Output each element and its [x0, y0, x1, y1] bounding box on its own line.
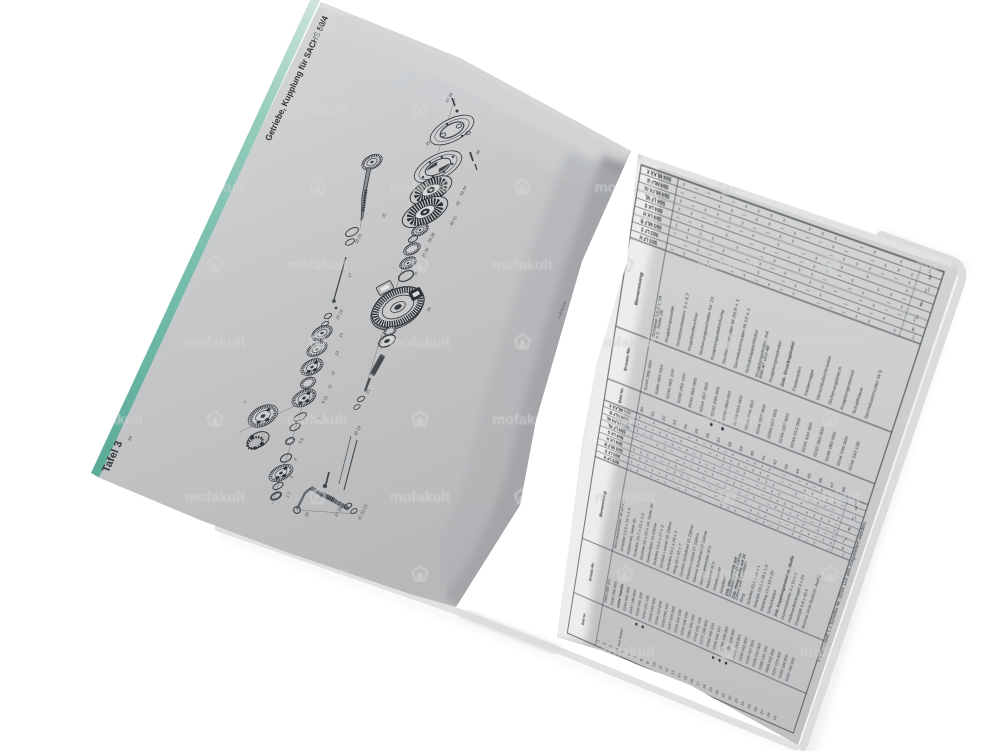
svg-text:x: x — [768, 221, 772, 227]
svg-text:x: x — [668, 461, 671, 466]
svg-text:x: x — [699, 231, 702, 237]
svg-text:—: — — [691, 202, 696, 209]
svg-text:—: — — [770, 265, 775, 272]
svg-text:x: x — [809, 279, 813, 285]
svg-text:44: 44 — [795, 468, 801, 475]
svg-text:—: — — [688, 218, 693, 225]
svg-text:x: x — [843, 497, 846, 502]
svg-text:x: x — [900, 258, 904, 264]
svg-text:x: x — [771, 489, 774, 494]
svg-text:x: x — [842, 256, 846, 262]
svg-text:x: x — [779, 233, 783, 239]
svg-text:—: — — [760, 253, 765, 260]
svg-text:—: — — [692, 450, 696, 456]
svg-text:—: — — [709, 243, 714, 250]
svg-text:x: x — [716, 453, 719, 458]
svg-text:—: — — [663, 479, 667, 484]
svg-text:—: — — [678, 479, 682, 484]
svg-text:—: — — [693, 444, 697, 450]
svg-text:x: x — [825, 268, 829, 274]
svg-text:x: x — [794, 283, 798, 289]
svg-text:x: x — [791, 238, 795, 244]
svg-text:x: x — [651, 468, 654, 473]
svg-text:x: x — [829, 540, 832, 545]
svg-text:46: 46 — [818, 477, 824, 484]
svg-text:—: — — [781, 278, 786, 285]
svg-text:x: x — [822, 537, 825, 542]
svg-text:—: — — [803, 516, 808, 522]
svg-text:40: 40 — [750, 450, 755, 457]
svg-text:—: — — [816, 299, 821, 306]
svg-text:—: — — [841, 308, 846, 315]
svg-text:—: — — [894, 275, 900, 282]
svg-text:—: — — [825, 525, 830, 531]
svg-text:x: x — [639, 456, 642, 461]
svg-text:Bild Nr.: Bild Nr. — [581, 612, 587, 626]
svg-text:x: x — [716, 211, 719, 217]
svg-text:—: — — [840, 503, 845, 509]
svg-text:x: x — [773, 258, 777, 264]
svg-text:—: — — [741, 477, 745, 483]
svg-text:x: x — [685, 488, 688, 493]
svg-text:0244 037 000: 0244 037 000 — [778, 413, 790, 444]
svg-text:x: x — [792, 290, 796, 296]
svg-text:x: x — [699, 460, 702, 465]
svg-text:6: 6 — [628, 653, 632, 657]
svg-text:Kupplungsdeckel: Kupplungsdeckel — [840, 370, 856, 411]
svg-text:x: x — [687, 227, 690, 233]
svg-text:1: 1 — [854, 515, 857, 520]
svg-text:19: 19 — [709, 687, 714, 693]
svg-text:x: x — [727, 505, 730, 510]
svg-text:x: x — [784, 270, 788, 276]
svg-text:x: x — [762, 520, 765, 525]
svg-text:x: x — [905, 288, 909, 294]
svg-text:—: — — [774, 249, 779, 256]
svg-text:x: x — [833, 528, 836, 533]
svg-text:0244 024 002: 0244 024 002 — [744, 399, 755, 430]
svg-text:11: 11 — [659, 665, 663, 670]
svg-text:x: x — [819, 292, 823, 298]
svg-text:Federteller: Federteller — [792, 366, 803, 392]
svg-text:x: x — [782, 507, 785, 512]
svg-text:x: x — [720, 502, 723, 507]
svg-text:x: x — [743, 471, 746, 476]
svg-text:x: x — [813, 513, 816, 518]
svg-text:x: x — [631, 459, 634, 464]
svg-text:x: x — [780, 513, 783, 518]
svg-text:x: x — [683, 460, 686, 465]
svg-text:—: — — [730, 268, 735, 275]
svg-text:42: 42 — [773, 459, 779, 466]
svg-text:21: 21 — [722, 692, 727, 698]
svg-text:12: 12 — [665, 667, 669, 673]
svg-text:x: x — [699, 494, 702, 499]
svg-text:45: 45 — [807, 473, 813, 480]
svg-text:—: — — [749, 240, 754, 247]
svg-text:x: x — [820, 488, 823, 493]
svg-text:—: — — [715, 487, 719, 492]
svg-text:x: x — [791, 532, 794, 537]
svg-text:x: x — [784, 501, 787, 506]
svg-text:x: x — [776, 498, 779, 503]
svg-text:x: x — [873, 249, 877, 255]
svg-text:0244 059 005: 0244 059 005 — [688, 377, 698, 408]
svg-text:x: x — [802, 522, 805, 527]
svg-text:x: x — [671, 442, 674, 447]
svg-text:—: — — [666, 467, 670, 472]
svg-text:23: 23 — [734, 698, 739, 704]
svg-text:—: — — [780, 225, 785, 232]
svg-text:x: x — [783, 217, 787, 223]
svg-text:—: — — [692, 484, 696, 489]
svg-text:0286 055 010: 0286 055 010 — [655, 364, 665, 395]
svg-text:x: x — [713, 466, 716, 471]
svg-text:9: 9 — [646, 661, 650, 665]
svg-text:—: — — [837, 272, 842, 279]
svg-text:—: — — [702, 440, 706, 446]
svg-text:—: — — [705, 462, 709, 468]
svg-text:x: x — [686, 448, 689, 453]
svg-text:x: x — [831, 534, 834, 539]
svg-text:—: — — [722, 490, 726, 495]
svg-text:5: 5 — [622, 650, 626, 654]
svg-text:—: — — [834, 522, 839, 528]
svg-text:x: x — [775, 504, 778, 509]
svg-text:x: x — [766, 508, 769, 513]
svg-text:1: 1 — [928, 268, 932, 274]
svg-text:x: x — [867, 318, 871, 324]
svg-text:—: — — [739, 228, 744, 235]
svg-text:—: — — [726, 471, 730, 477]
svg-text:25: 25 — [747, 704, 752, 710]
svg-text:x: x — [640, 450, 643, 455]
svg-text:—: — — [664, 439, 668, 445]
svg-text:x: x — [732, 452, 735, 457]
svg-text:x: x — [666, 433, 669, 438]
svg-text:—: — — [835, 493, 840, 499]
svg-text:x: x — [690, 210, 693, 216]
svg-text:x: x — [680, 438, 683, 443]
svg-text:—: — — [827, 546, 832, 551]
svg-text:—: — — [785, 522, 790, 527]
svg-text:x: x — [817, 500, 820, 505]
svg-text:x: x — [817, 528, 820, 533]
svg-text:x: x — [754, 461, 757, 466]
svg-text:7: 7 — [634, 656, 638, 660]
svg-text:x: x — [757, 269, 760, 275]
svg-text:x: x — [697, 466, 700, 471]
svg-text:x: x — [805, 482, 808, 487]
svg-text:x: x — [744, 499, 747, 504]
svg-text:2: 2 — [603, 642, 607, 646]
svg-text:19: 19 — [126, 435, 133, 441]
svg-text:—: — — [823, 531, 828, 536]
svg-text:x: x — [696, 247, 699, 253]
svg-text:29: 29 — [773, 715, 778, 721]
svg-text:x: x — [720, 194, 723, 200]
svg-text:—: — — [702, 215, 707, 222]
svg-text:—: — — [728, 499, 732, 504]
svg-text:—: — — [818, 238, 823, 245]
svg-text:—: — — [818, 494, 823, 500]
svg-text:—: — — [713, 493, 717, 498]
svg-text:16: 16 — [690, 678, 695, 684]
svg-text:x: x — [636, 468, 639, 473]
svg-text:x: x — [855, 313, 859, 319]
svg-text:—: — — [637, 421, 641, 427]
svg-text:—: — — [754, 277, 759, 284]
svg-text:x: x — [765, 480, 768, 485]
svg-text:x: x — [811, 491, 814, 496]
svg-text:—: — — [897, 311, 903, 318]
svg-text:x: x — [758, 505, 761, 510]
svg-text:k: k — [911, 327, 915, 334]
svg-text:x: x — [650, 434, 653, 439]
svg-text:—: — — [681, 466, 685, 471]
svg-text:—: — — [716, 481, 720, 486]
svg-text:x: x — [759, 470, 762, 475]
svg-text:x: x — [673, 470, 676, 475]
svg-text:0244 046 000: 0244 046 000 — [836, 436, 849, 467]
svg-text:—: — — [755, 483, 760, 489]
svg-text:x: x — [729, 465, 732, 470]
svg-text:1: 1 — [927, 286, 931, 292]
svg-text:x: x — [787, 516, 790, 521]
svg-text:x: x — [733, 481, 736, 486]
svg-text:x: x — [683, 250, 686, 256]
svg-text:x: x — [811, 271, 815, 277]
svg-text:x: x — [826, 497, 829, 502]
svg-text:—: — — [739, 483, 743, 489]
svg-text:1: 1 — [842, 552, 845, 557]
svg-text:x: x — [890, 291, 894, 297]
svg-text:x: x — [897, 267, 901, 273]
svg-text:x: x — [653, 421, 656, 426]
svg-text:32: 32 — [662, 415, 667, 422]
svg-text:33: 33 — [673, 419, 678, 426]
svg-text:—: — — [858, 297, 863, 304]
svg-text:Sicherungsblech: Sicherungsblech — [828, 366, 843, 406]
svg-text:—: — — [672, 435, 676, 441]
svg-text:x: x — [650, 474, 653, 479]
svg-text:x: x — [683, 181, 686, 187]
svg-text:x: x — [656, 443, 659, 448]
svg-text:—: — — [719, 468, 723, 474]
svg-text:Schaltklaue: Schaltklaue — [852, 387, 864, 415]
svg-text:x: x — [645, 424, 648, 429]
svg-text:x: x — [724, 484, 727, 489]
svg-text:x: x — [808, 531, 811, 536]
svg-text:x: x — [701, 223, 704, 229]
svg-text:—: — — [814, 506, 819, 512]
svg-text:—: — — [688, 435, 692, 441]
svg-text:x: x — [800, 528, 803, 533]
svg-text:—: — — [656, 476, 660, 481]
svg-text:x: x — [767, 473, 770, 478]
svg-text:—: — — [694, 185, 699, 192]
svg-text:—: — — [680, 189, 685, 196]
svg-text:—: — — [747, 514, 751, 519]
svg-text:x: x — [680, 198, 683, 204]
svg-text:x: x — [722, 248, 725, 254]
svg-text:—: — — [844, 248, 850, 255]
svg-text:x: x — [884, 262, 888, 268]
svg-text:8: 8 — [640, 658, 644, 662]
svg-text:27: 27 — [760, 709, 765, 715]
svg-text:—: — — [685, 482, 689, 487]
svg-text:x: x — [704, 207, 707, 213]
svg-text:—: — — [822, 276, 827, 283]
svg-text:—: — — [676, 214, 681, 221]
svg-text:—: — — [714, 219, 719, 226]
svg-text:43: 43 — [784, 464, 790, 471]
svg-text:x: x — [711, 472, 714, 477]
svg-text:Ring: Ring — [740, 593, 746, 603]
svg-text:x: x — [900, 304, 904, 310]
svg-text:x: x — [837, 516, 840, 521]
svg-text:x: x — [832, 243, 836, 249]
svg-text:x: x — [725, 232, 728, 238]
svg-text:x: x — [707, 259, 710, 265]
svg-text:—: — — [671, 476, 675, 481]
svg-text:0259 024 000: 0259 024 000 — [733, 395, 744, 426]
svg-text:31: 31 — [651, 411, 656, 418]
svg-text:—: — — [806, 287, 811, 294]
svg-text:S: S — [854, 506, 858, 512]
svg-text:—: — — [721, 496, 725, 501]
svg-text:0242 050 000: 0242 050 000 — [722, 391, 733, 422]
svg-text:x: x — [758, 477, 761, 482]
svg-text:—: — — [746, 256, 751, 263]
svg-text:x: x — [721, 462, 724, 467]
svg-text:13: 13 — [671, 670, 675, 676]
svg-text:x: x — [734, 508, 737, 513]
svg-text:x: x — [762, 245, 766, 251]
svg-text:—: — — [703, 469, 707, 475]
svg-text:x: x — [815, 255, 819, 261]
svg-text:—: — — [745, 458, 750, 464]
svg-text:—: — — [756, 510, 760, 515]
svg-text:—: — — [683, 242, 688, 249]
svg-text:0246 055 100: 0246 055 100 — [666, 369, 676, 400]
svg-text:x: x — [770, 212, 774, 218]
svg-text:—: — — [833, 288, 838, 295]
svg-text:x: x — [777, 526, 780, 531]
svg-text:x: x — [757, 208, 761, 214]
svg-text:x: x — [686, 235, 689, 241]
svg-text:—: — — [724, 449, 728, 455]
svg-text:—: — — [726, 223, 731, 230]
svg-text:Kupplungswelle: Kupplungswelle — [665, 305, 676, 343]
svg-text:—: — — [725, 477, 729, 483]
svg-text:—: — — [870, 257, 876, 264]
svg-text:—: — — [708, 450, 712, 456]
svg-text:x: x — [851, 277, 855, 283]
svg-text:—: — — [629, 465, 633, 470]
svg-text:x: x — [675, 464, 678, 469]
svg-text:x: x — [910, 271, 914, 277]
svg-text:x: x — [691, 457, 694, 462]
svg-text:—: — — [692, 194, 697, 201]
svg-text:38: 38 — [728, 441, 733, 448]
svg-text:1: 1 — [597, 639, 601, 643]
svg-text:x: x — [678, 206, 681, 212]
svg-text:—: — — [782, 472, 787, 478]
svg-text:x: x — [777, 242, 781, 248]
svg-text:x: x — [804, 488, 807, 493]
svg-text:—: — — [884, 307, 890, 314]
svg-text:1: 1 — [912, 334, 916, 340]
svg-text:—: — — [637, 462, 641, 467]
svg-text:x: x — [644, 465, 647, 470]
svg-text:—: — — [746, 486, 750, 492]
svg-text:—: — — [801, 250, 806, 257]
svg-text:Scheibenfedern 3 x 3,7: Scheibenfedern 3 x 3,7 — [676, 292, 691, 347]
svg-text:Kugellaufbuchse: Kugellaufbuchse — [687, 312, 699, 352]
svg-text:—: — — [640, 443, 644, 449]
svg-text:x: x — [791, 504, 794, 509]
svg-text:x: x — [840, 264, 844, 270]
svg-text:x: x — [798, 534, 801, 539]
svg-text:x: x — [763, 486, 766, 491]
svg-text:—: — — [689, 463, 693, 469]
svg-text:x: x — [646, 459, 649, 464]
svg-text:x: x — [796, 513, 799, 518]
svg-text:—: — — [745, 492, 749, 497]
svg-text:—: — — [848, 285, 853, 292]
svg-text:F 4550/043: F 4550/043 — [556, 300, 567, 319]
svg-text:—: — — [669, 448, 673, 454]
svg-text:x: x — [821, 230, 825, 236]
svg-text:—: — — [881, 270, 887, 277]
svg-text:Zsb. Druckspindel: Zsb. Druckspindel — [780, 341, 796, 388]
svg-text:x: x — [798, 267, 802, 273]
svg-text:x: x — [753, 496, 756, 501]
svg-text:—: — — [805, 537, 810, 542]
svg-text:x: x — [741, 220, 744, 226]
svg-text:—: — — [706, 190, 711, 197]
svg-text:x: x — [834, 235, 838, 241]
svg-text:x: x — [764, 514, 767, 519]
svg-text:x: x — [767, 281, 771, 287]
svg-text:x: x — [636, 428, 639, 433]
svg-text:20: 20 — [715, 690, 720, 696]
svg-text:—: — — [808, 497, 813, 503]
svg-text:x: x — [729, 216, 732, 222]
svg-text:Sechskantmutter M 5: Sechskantmutter M 5 — [864, 369, 884, 419]
svg-text:—: — — [658, 470, 662, 475]
svg-text:x: x — [752, 233, 756, 239]
svg-text:x: x — [700, 453, 703, 458]
svg-text:x: x — [877, 286, 881, 292]
svg-text:Ersatz-Nr.: Ersatz-Nr. — [624, 346, 632, 372]
svg-text:Bild Nr.: Bild Nr. — [618, 386, 625, 404]
svg-text:x: x — [855, 261, 859, 267]
svg-text:x: x — [737, 462, 740, 467]
svg-text:x: x — [857, 306, 861, 312]
svg-text:x: x — [698, 239, 701, 245]
svg-text:x: x — [820, 516, 823, 521]
svg-text:0244 057 005: 0244 057 005 — [699, 382, 710, 413]
svg-text:30: 30 — [640, 406, 645, 413]
svg-text:36: 36 — [705, 432, 710, 439]
svg-text:x: x — [718, 203, 721, 209]
svg-text:x: x — [654, 455, 657, 460]
svg-text:Benennung: Benennung — [634, 272, 644, 307]
svg-text:—: — — [652, 461, 656, 466]
svg-text:x: x — [703, 475, 706, 480]
